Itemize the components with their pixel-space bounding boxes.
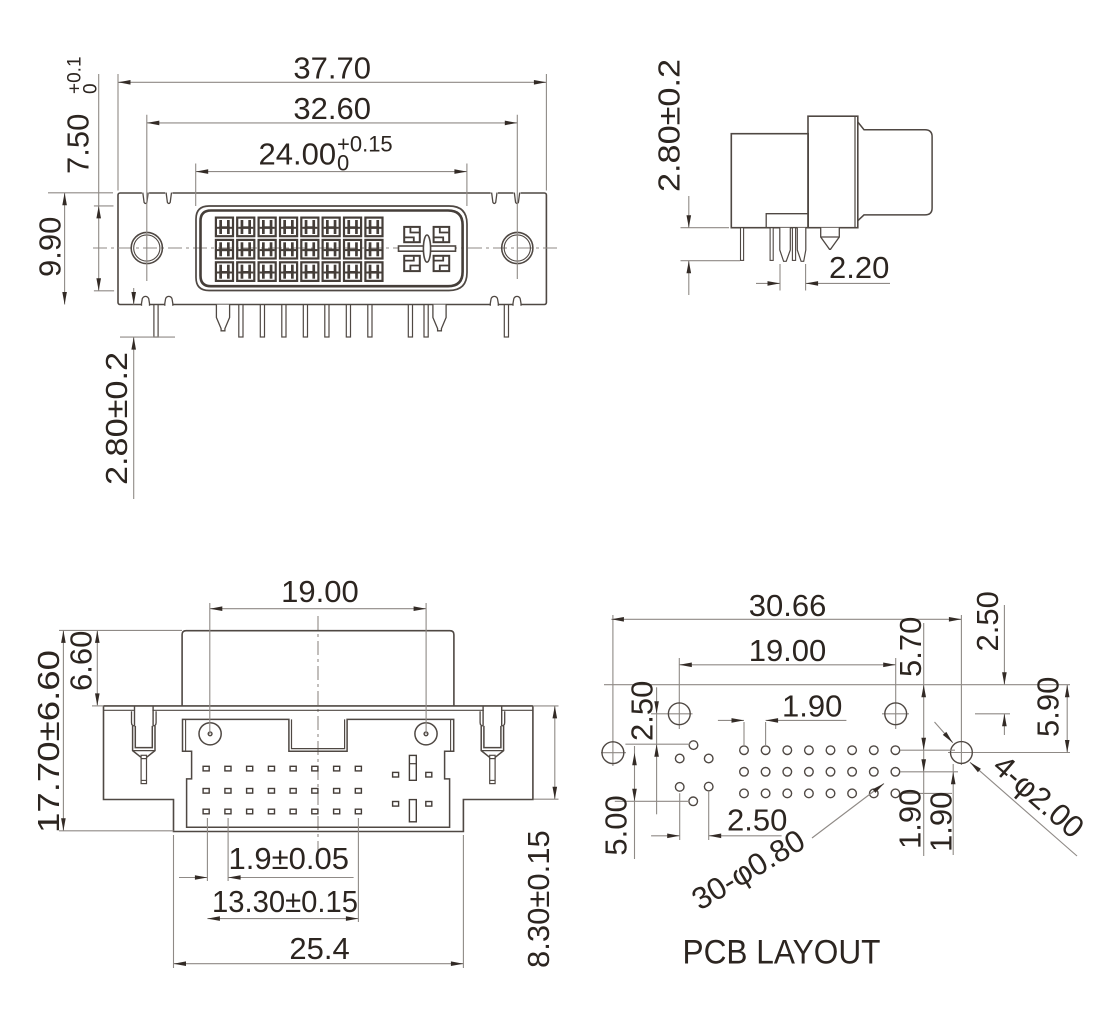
svg-text:37.70: 37.70 xyxy=(293,50,371,85)
svg-text:0: 0 xyxy=(81,83,102,94)
svg-text:30.66: 30.66 xyxy=(749,588,827,623)
svg-text:24.00: 24.00 xyxy=(259,136,337,171)
svg-text:2.80±0.2: 2.80±0.2 xyxy=(652,59,687,192)
svg-text:1.90: 1.90 xyxy=(924,792,959,852)
svg-text:2.20: 2.20 xyxy=(829,250,889,285)
svg-text:19.00: 19.00 xyxy=(281,574,359,609)
svg-text:8.30±0.15: 8.30±0.15 xyxy=(521,830,556,968)
svg-text:2.50: 2.50 xyxy=(970,591,1005,651)
svg-text:1.90: 1.90 xyxy=(892,789,927,849)
svg-text:6.60: 6.60 xyxy=(64,631,99,691)
svg-text:1.9±0.05: 1.9±0.05 xyxy=(229,841,349,876)
svg-text:2.80±0.2: 2.80±0.2 xyxy=(99,352,134,485)
svg-text:0: 0 xyxy=(337,151,349,176)
svg-text:17.70±6.60: 17.70±6.60 xyxy=(31,650,66,833)
svg-text:PCB LAYOUT: PCB LAYOUT xyxy=(683,934,881,972)
svg-text:13.30±0.15: 13.30±0.15 xyxy=(212,884,358,919)
svg-text:2.50: 2.50 xyxy=(625,681,660,741)
svg-text:9.90: 9.90 xyxy=(33,217,68,277)
svg-text:25.4: 25.4 xyxy=(289,931,349,966)
svg-text:7.50: 7.50 xyxy=(60,114,95,174)
svg-text:5.90: 5.90 xyxy=(1031,677,1066,737)
svg-text:5.70: 5.70 xyxy=(893,617,928,677)
svg-text:1.90: 1.90 xyxy=(782,689,842,724)
svg-text:32.60: 32.60 xyxy=(293,91,371,126)
svg-text:19.00: 19.00 xyxy=(749,633,827,668)
svg-text:5.00: 5.00 xyxy=(598,795,633,855)
